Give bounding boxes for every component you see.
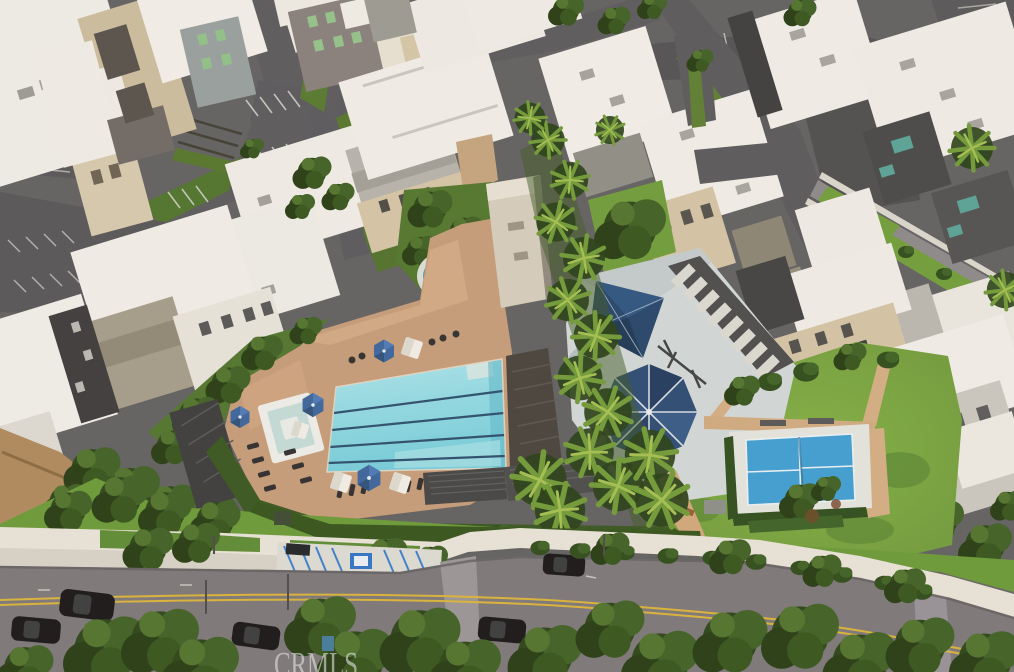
svg-text:CRMLS: CRMLS [274,645,358,672]
